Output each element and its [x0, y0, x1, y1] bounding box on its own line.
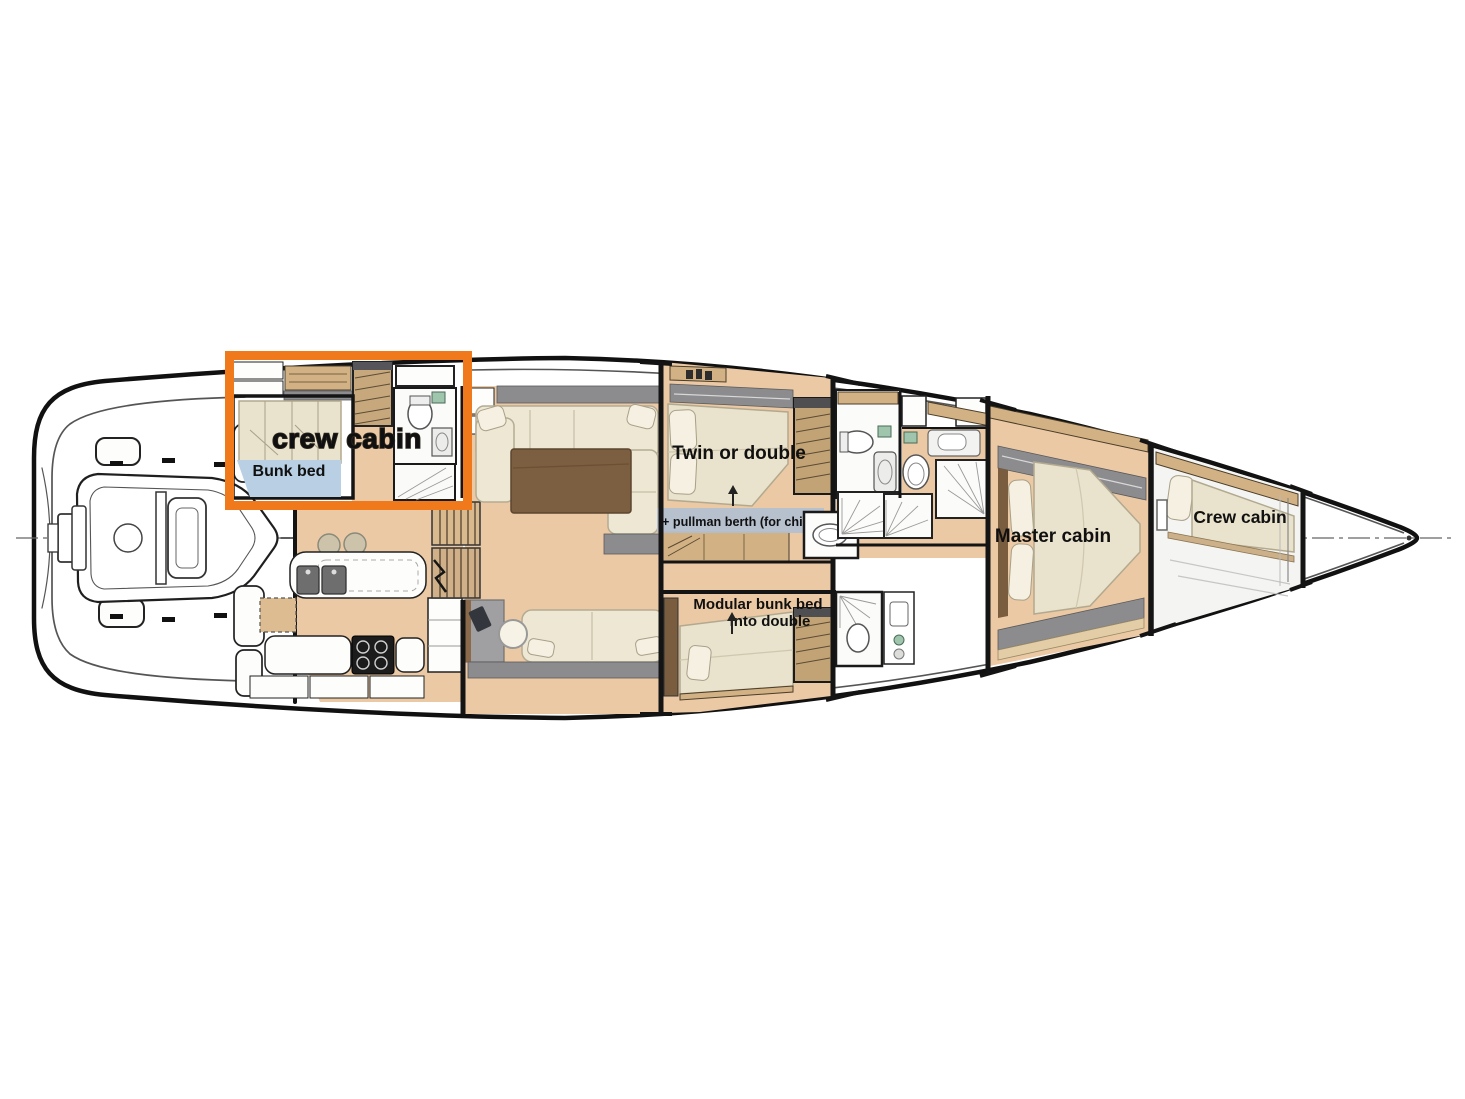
master-cabin-label: Master cabin: [995, 526, 1111, 547]
soap-tray: [432, 392, 445, 403]
side-deck-strip: [497, 386, 659, 403]
deck-hatch: [96, 438, 140, 465]
yacht-deck-plan: crew cabin Bunk bed: [0, 0, 1465, 1099]
salon-table: [511, 449, 631, 513]
modular-label-2: into double: [730, 613, 811, 630]
toilet: [903, 455, 929, 489]
deck-hatch: [99, 599, 144, 627]
aft-shower: [394, 464, 455, 500]
bow-crew-cabin-label: Crew cabin: [1193, 507, 1286, 527]
modular-label-1: Modular bunk bed: [693, 596, 822, 613]
twin-cabin-label: Twin or double: [672, 443, 806, 464]
side-deck-strip: [468, 662, 664, 678]
pullman-note-label: + pullman berth (for child): [662, 514, 818, 529]
shower-stall: [884, 494, 932, 538]
stove: [352, 636, 394, 674]
soap-tray: [904, 432, 917, 443]
aft-crew-cabin-label: crew cabin: [272, 423, 422, 454]
salon-side-cabinet: [604, 534, 660, 554]
companionway-stairs: [432, 502, 480, 598]
armchair: [499, 620, 527, 648]
bow-tip-dot: [1407, 536, 1412, 541]
sink: [432, 428, 452, 456]
soap-tray: [878, 426, 891, 437]
toilet: [847, 624, 869, 652]
salon-sofa: [522, 610, 664, 662]
aft-shelf: [285, 366, 351, 390]
aft-wardrobe: [353, 362, 392, 426]
galley-tall-unit: [428, 598, 462, 672]
modular-bathroom: [836, 592, 914, 666]
aft-bunk-label: Bunk bed: [253, 463, 326, 480]
galley-island: [260, 598, 296, 632]
sink: [874, 452, 896, 492]
mid-bathrooms: [836, 390, 990, 538]
